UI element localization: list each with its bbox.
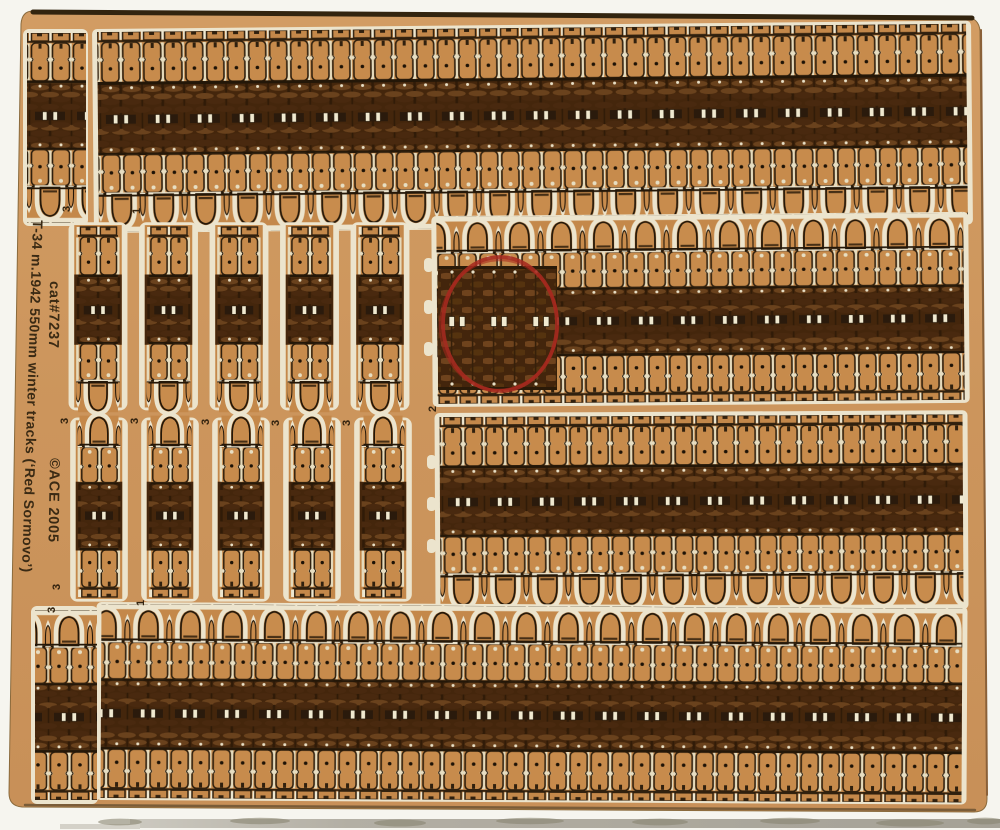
svg-text:cat#7237: cat#7237 — [45, 281, 62, 349]
svg-text:3: 3 — [51, 584, 63, 590]
svg-text:3: 3 — [129, 418, 141, 424]
svg-text:3: 3 — [61, 206, 73, 212]
svg-text:2: 2 — [427, 406, 439, 412]
svg-text:3: 3 — [341, 420, 353, 426]
svg-text:1: 1 — [131, 208, 143, 214]
svg-text:1: 1 — [135, 600, 147, 606]
svg-text:©ACE 2005: ©ACE 2005 — [45, 458, 62, 543]
svg-text:3: 3 — [59, 418, 71, 424]
svg-text:3: 3 — [200, 419, 212, 425]
svg-text:3: 3 — [270, 420, 282, 426]
svg-text:3: 3 — [46, 607, 58, 613]
